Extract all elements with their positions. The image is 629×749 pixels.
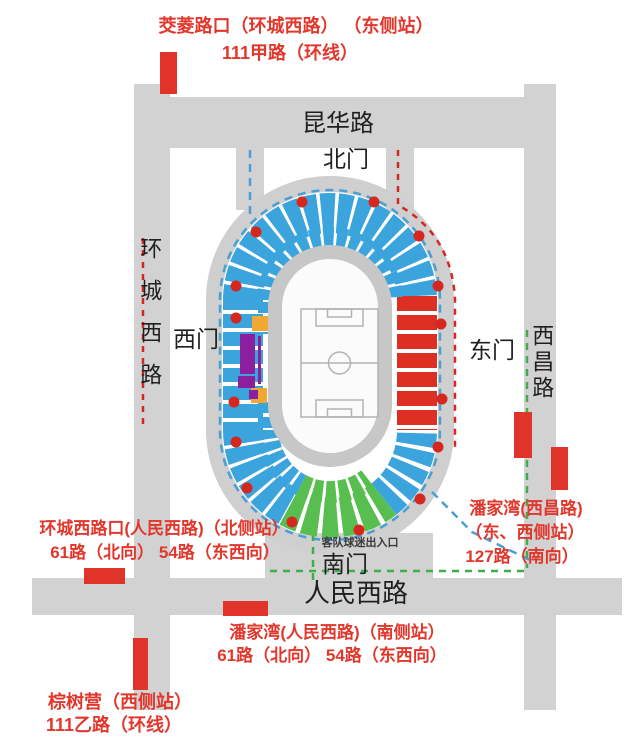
station-label-jiaoling-lines: 111甲路（环线） bbox=[222, 43, 358, 64]
marker-jiaoling-stop bbox=[160, 52, 177, 94]
marker-panjiawan-renmin-stop bbox=[223, 601, 268, 616]
label-away-fans-entrance: 客队球迷出入口 bbox=[322, 537, 399, 550]
marker-panjiawan-xichang-east-stop bbox=[551, 447, 568, 490]
south-stand-inner-row bbox=[301, 479, 368, 492]
purple-rostrum-rail bbox=[258, 336, 261, 384]
gate-label-north: 北门 bbox=[323, 146, 369, 172]
orange-section-upper bbox=[252, 316, 268, 331]
station-label-panjiawan-xichang-side: （东、西侧站） bbox=[466, 523, 585, 543]
marker-zongshuying-stop bbox=[133, 638, 148, 690]
station-label-huancheng-xilukou-lines: 61路（北向） 54路（东西向） bbox=[50, 543, 280, 563]
road-label-xichang: 西昌路 bbox=[529, 324, 554, 402]
infield bbox=[282, 259, 378, 453]
stadium-transit-map: 茭菱路口（环城西路） （东侧站） 111甲路（环线） 昆华路 北门 环城西路 西… bbox=[0, 0, 629, 749]
gate-label-west: 西门 bbox=[173, 326, 219, 352]
purple-rostrum-main bbox=[240, 334, 255, 374]
gate-label-south: 南门 bbox=[322, 551, 368, 577]
road-label-kunhua: 昆华路 bbox=[302, 110, 374, 138]
purple-rostrum-lower bbox=[238, 376, 255, 388]
road-label-huancheng-west: 环城西路 bbox=[137, 237, 162, 405]
purple-rostrum-small bbox=[249, 390, 258, 399]
marker-panjiawan-xichang-west-stop bbox=[514, 412, 532, 458]
gate-label-east: 东门 bbox=[469, 337, 515, 363]
station-label-panjiawan-renmin-lines: 61路（北向） 54路（东西向） bbox=[217, 646, 447, 666]
marker-huancheng-xilukou-stop bbox=[84, 568, 125, 584]
station-label-panjiawan-xichang-lines: 127路（南向） bbox=[465, 547, 578, 567]
station-label-jiaoling-name: 茭菱路口（环城西路） （东侧站） bbox=[159, 16, 434, 37]
southeast-stand-blue bbox=[384, 430, 417, 499]
station-label-panjiawan-renmin-name: 潘家湾(人民西路)（南侧站） bbox=[229, 623, 444, 643]
road-label-renmin-west: 人民西路 bbox=[304, 579, 408, 609]
station-label-zongshuying-name: 棕树营（西侧站） bbox=[48, 692, 192, 713]
station-label-zongshuying-lines: 111乙路（环线） bbox=[46, 715, 182, 736]
station-label-huancheng-xilukou-name: 环城西路口(人民西路)（北侧站） bbox=[39, 519, 288, 539]
station-label-panjiawan-xichang-name: 潘家湾(西昌路) bbox=[469, 499, 582, 519]
